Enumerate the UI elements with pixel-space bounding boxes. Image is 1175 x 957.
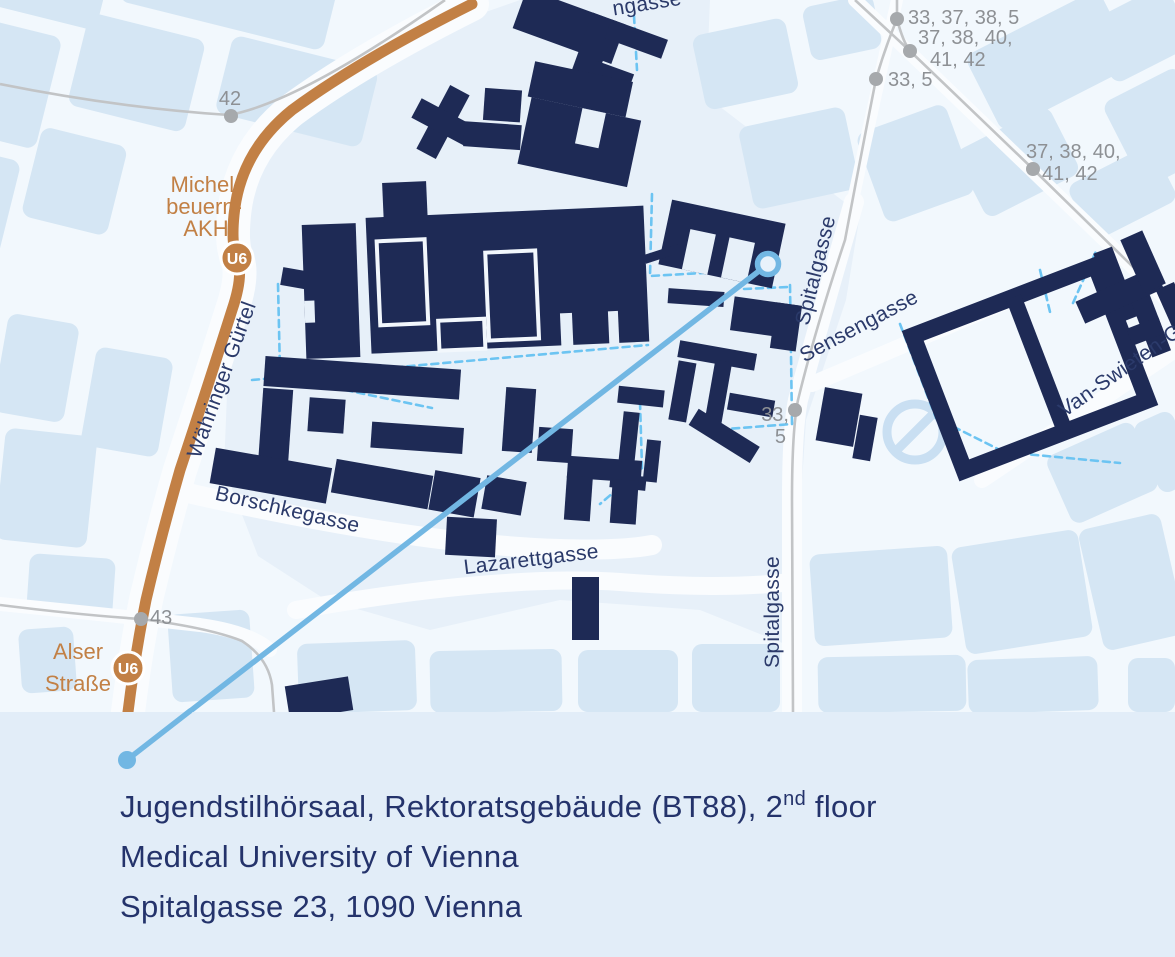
station-label-alser-line2: Straße	[45, 671, 111, 696]
building-courtyard	[438, 319, 485, 351]
stop-dot	[224, 109, 238, 123]
building-part	[382, 181, 428, 223]
destination-ring-marker	[758, 254, 779, 275]
tram-stop-label-42: 42	[219, 88, 241, 110]
building	[572, 577, 599, 640]
u6-station-michelbeuern-badge: U6	[221, 242, 253, 274]
address-line3: Spitalgasse 23, 1090 Vienna	[120, 889, 523, 924]
stop-dot	[890, 12, 904, 26]
tram-stop-label-33-37-38-5: 33, 37, 38, 5	[908, 7, 1019, 29]
tram-stop-label-43: 43	[150, 607, 172, 629]
building-gap	[560, 313, 573, 347]
stop-dot	[134, 612, 148, 626]
station-label-alser-line1: Alser	[53, 639, 103, 664]
stop-dot	[903, 44, 917, 58]
tram-stop-label-33-5-mid-line1: 33,	[761, 404, 789, 426]
building	[463, 121, 522, 150]
map-canvas: U6 U6 ngasse Währinger Gürtel Borschkega…	[0, 0, 1175, 957]
stop-dot	[1026, 162, 1040, 176]
building-gap	[608, 311, 619, 345]
building-gap	[304, 301, 315, 323]
tram-stop-label-37-38-40b-line2: 41, 42	[1042, 163, 1098, 185]
u6-badge-label: U6	[227, 251, 248, 268]
building	[483, 88, 522, 123]
map-flyer: U6 U6 ngasse Währinger Gürtel Borschkega…	[0, 0, 1175, 957]
station-label-michelbeuern-line3: AKH	[183, 216, 228, 241]
stop-dot	[788, 403, 802, 417]
address-line2: Medical University of Vienna	[120, 839, 519, 874]
building-part	[302, 223, 361, 359]
building-part	[258, 388, 293, 464]
route-end-dot	[118, 751, 136, 769]
address-line1: Jugendstilhörsaal, Rektoratsgebäude (BT8…	[120, 788, 877, 824]
building	[537, 427, 573, 463]
building-part	[610, 479, 639, 525]
u6-station-alser-badge: U6	[112, 652, 144, 684]
u6-badge-label: U6	[118, 661, 139, 678]
tram-stop-label-37-38-40-line1: 37, 38, 40,	[918, 27, 1013, 49]
building-part	[564, 476, 593, 522]
tram-stop-label-37-38-40-line2: 41, 42	[930, 49, 986, 71]
stop-dot	[869, 72, 883, 86]
building	[502, 387, 536, 453]
tram-stop-label-33-5-mid-line2: 5	[775, 426, 786, 448]
building-courtyard	[485, 250, 539, 340]
tram-stop-label-37-38-40b-line1: 37, 38, 40,	[1026, 141, 1121, 163]
building-courtyard	[377, 239, 429, 325]
tram-stop-label-33-5: 33, 5	[888, 69, 932, 91]
building-part	[307, 397, 345, 433]
street-label-spitalgasse-lower: Spitalgasse	[761, 556, 784, 668]
building	[445, 517, 497, 558]
